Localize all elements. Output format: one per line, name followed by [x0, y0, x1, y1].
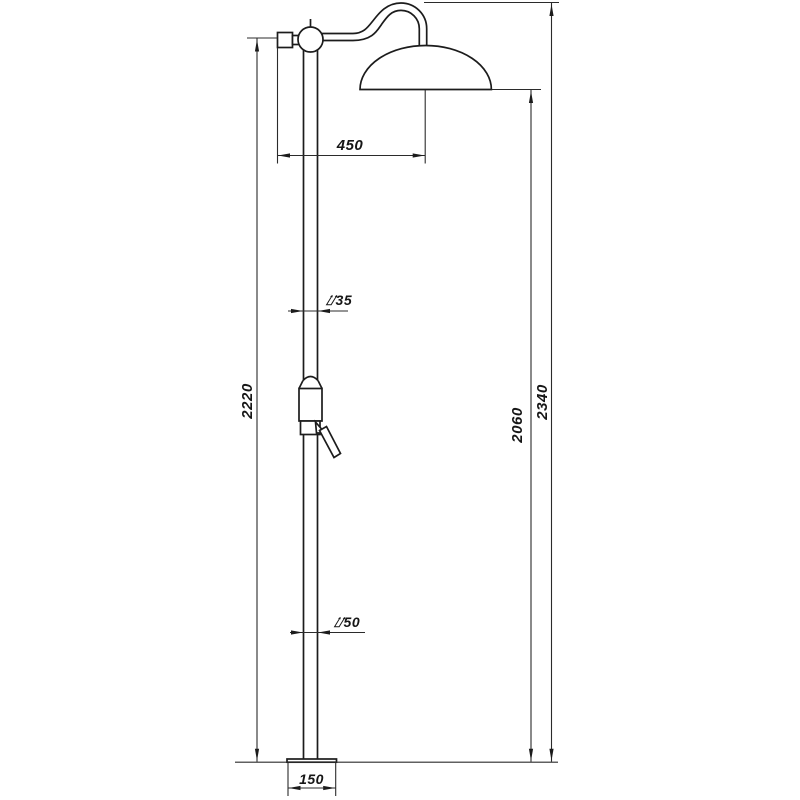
dimension-arrow	[318, 630, 330, 634]
ball-joint-sphere	[298, 27, 323, 52]
dimension-2060: 2060	[491, 90, 541, 762]
dimension-arrow	[529, 749, 533, 761]
dimension-arrow	[291, 630, 303, 634]
dimension-arrow	[549, 4, 553, 16]
valve-shoulder-right	[318, 381, 322, 389]
dimension-arrow	[549, 749, 553, 761]
dimension-2220: 2220	[239, 38, 277, 762]
dimension-dia-35: ⌰35	[288, 292, 352, 313]
pole-lower	[304, 435, 318, 760]
gooseneck-outer-edge	[353, 3, 427, 48]
dimension-label-overall-height: 2340	[534, 384, 551, 421]
gooseneck-inner-edge	[353, 10, 419, 47]
technical-drawing-page: 450 ⌰35 ⌰50 2220 2060 2340	[0, 0, 800, 800]
dimension-arrow	[323, 786, 335, 790]
shower-column	[235, 3, 558, 762]
shower-head-dome	[360, 46, 491, 90]
valve-cap-arc	[303, 377, 318, 381]
dimension-arrow	[413, 153, 425, 157]
dimension-arrow	[255, 749, 259, 761]
mixer-valve	[299, 377, 341, 458]
ball-joint	[298, 19, 323, 52]
valve-shoulder-left	[299, 381, 303, 389]
dimension-arrow	[529, 91, 533, 103]
dimension-150: 150	[288, 763, 336, 796]
dimension-arrow	[255, 40, 259, 52]
dimension-label-upper-pipe-diameter: ⌰35	[325, 292, 352, 308]
dimension-arrow	[291, 309, 303, 313]
dimension-label-column-height: 2220	[239, 383, 256, 420]
dimension-arrow	[278, 153, 290, 157]
shower-column-technical-drawing: 450 ⌰35 ⌰50 2220 2060 2340	[0, 0, 800, 800]
valve-body	[299, 389, 322, 422]
dimension-label-base-width: 150	[299, 771, 324, 787]
gooseneck-arm	[353, 3, 427, 48]
dimension-label-lower-pipe-diameter: ⌰50	[333, 614, 360, 630]
dimension-label-head-rim-height: 2060	[509, 407, 526, 444]
dimension-label-arm-reach: 450	[336, 137, 364, 154]
dimension-2340: 2340	[424, 3, 559, 762]
dimension-arrow	[318, 309, 330, 313]
inlet-connector-body	[278, 33, 293, 48]
lever-handle	[320, 427, 341, 458]
dimension-dia-50: ⌰50	[290, 614, 365, 635]
pole-upper	[304, 45, 318, 380]
